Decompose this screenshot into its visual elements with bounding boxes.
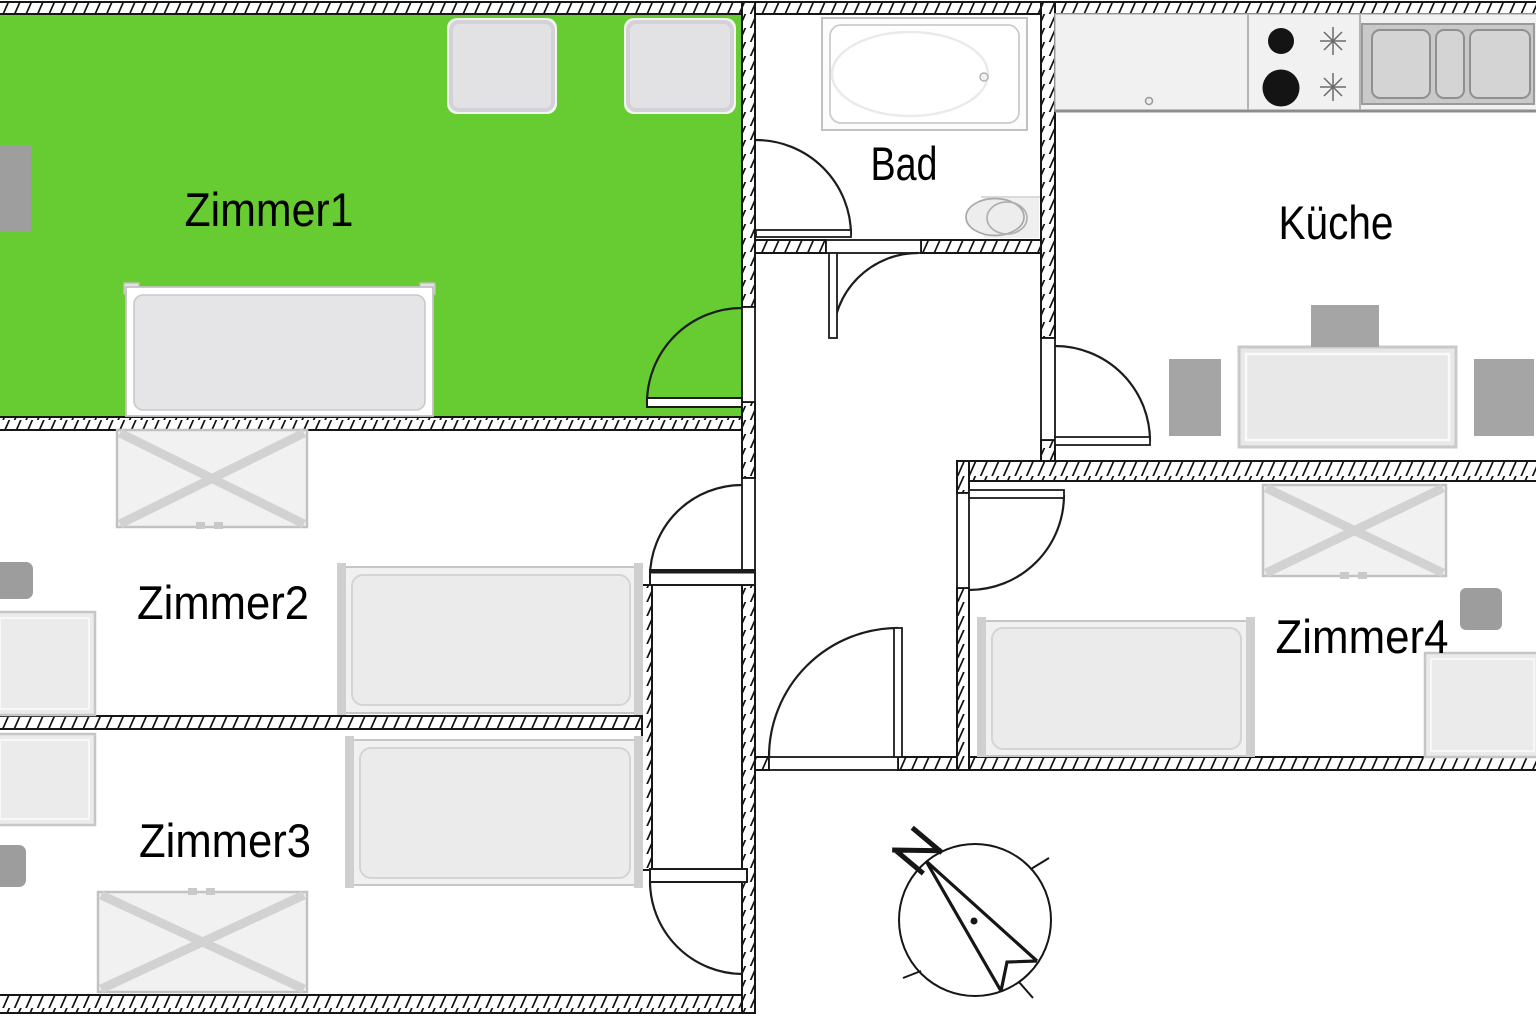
- svg-text:Bad: Bad: [871, 137, 938, 190]
- svg-text:Zimmer1: Zimmer1: [185, 183, 354, 236]
- svg-text:Zimmer4: Zimmer4: [1276, 610, 1449, 663]
- svg-text:Küche: Küche: [1279, 196, 1394, 249]
- svg-text:Zimmer2: Zimmer2: [137, 576, 309, 629]
- svg-text:Zimmer3: Zimmer3: [139, 814, 311, 867]
